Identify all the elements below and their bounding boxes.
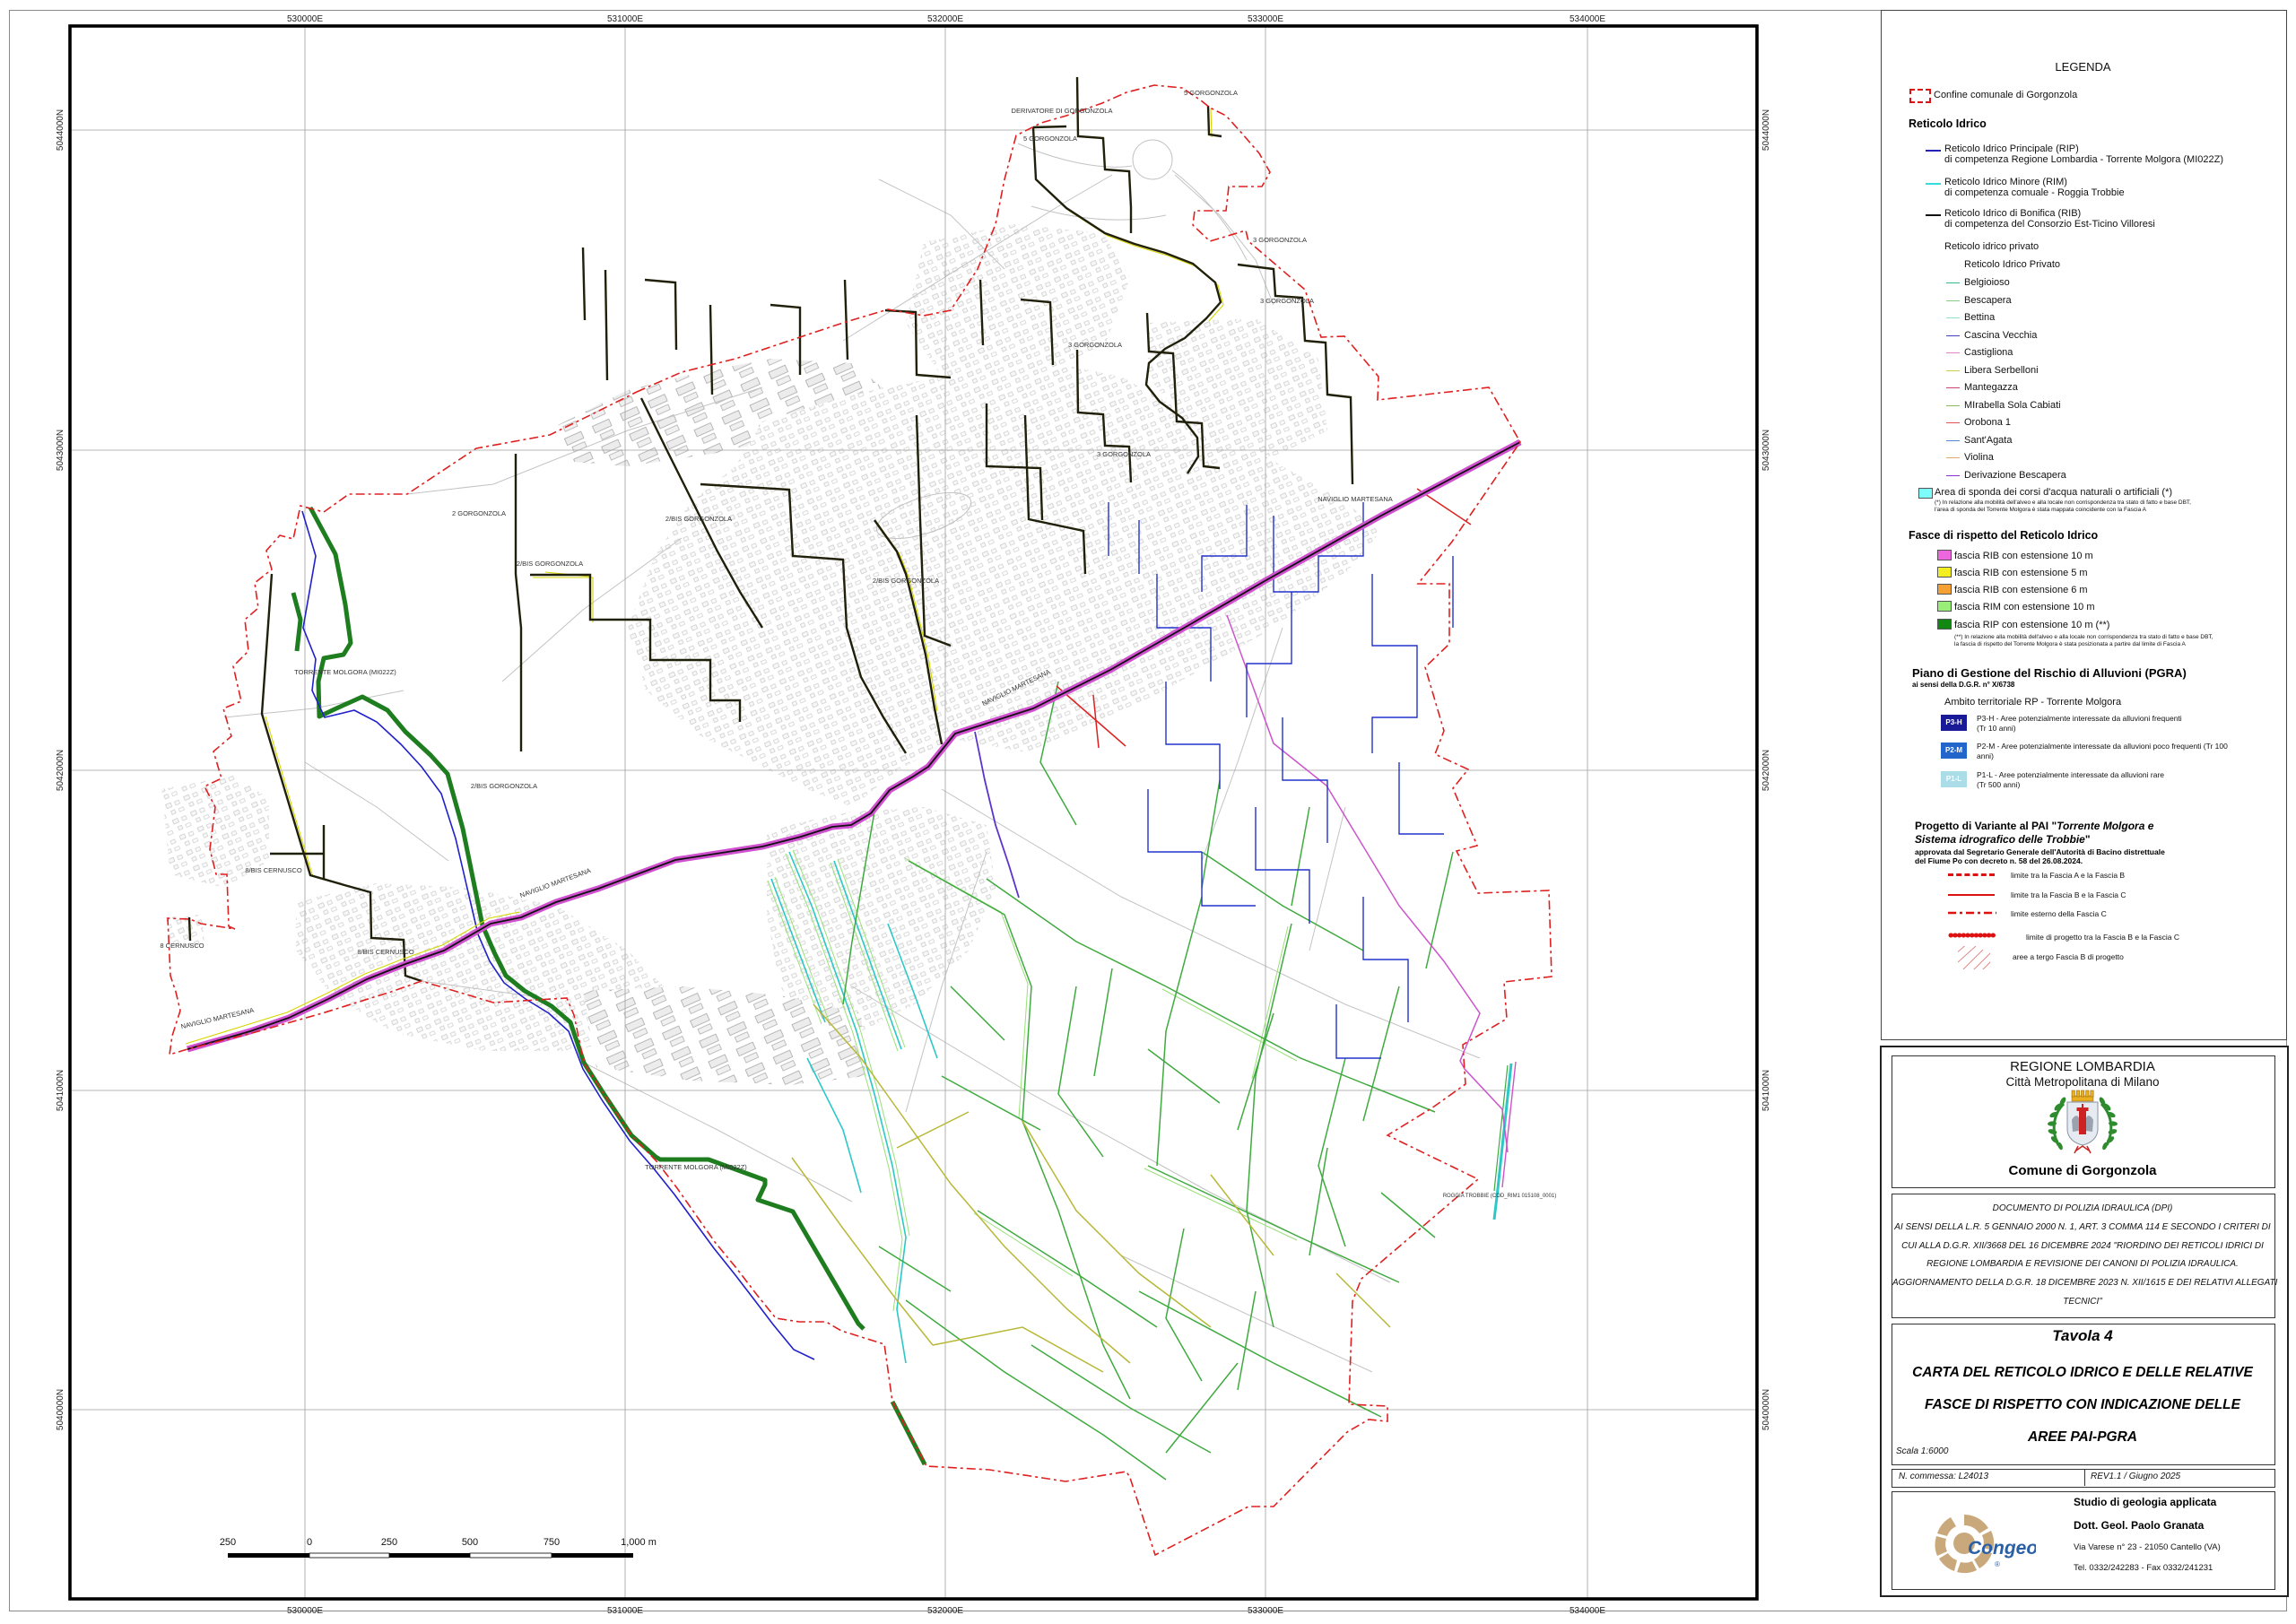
- svg-text:531000E: 531000E: [607, 14, 643, 24]
- svg-text:530000E: 530000E: [287, 14, 323, 24]
- svg-text:8/BIS CERNUSCO: 8/BIS CERNUSCO: [245, 866, 302, 874]
- svg-text:2/BIS GORGONZOLA: 2/BIS GORGONZOLA: [471, 782, 537, 790]
- svg-text:500: 500: [462, 1537, 478, 1548]
- svg-text:534000E: 534000E: [1570, 1606, 1605, 1616]
- svg-text:5 GORGONZOLA: 5 GORGONZOLA: [1023, 135, 1077, 143]
- svg-text:5 GORGONZOLA: 5 GORGONZOLA: [1184, 89, 1238, 97]
- svg-text:®: ®: [1995, 1560, 2000, 1568]
- svg-text:750: 750: [544, 1537, 560, 1548]
- svg-text:533000E: 533000E: [1248, 1606, 1283, 1616]
- svg-text:534000E: 534000E: [1570, 14, 1605, 24]
- svg-text:3 GORGONZOLA: 3 GORGONZOLA: [1260, 297, 1314, 305]
- svg-text:1,000 m: 1,000 m: [621, 1537, 657, 1548]
- svg-text:532000E: 532000E: [927, 1606, 963, 1616]
- svg-text:250: 250: [220, 1537, 236, 1548]
- svg-text:5042000N: 5042000N: [1761, 750, 1771, 791]
- svg-text:5040000N: 5040000N: [56, 1389, 65, 1430]
- svg-text:NAVIGLIO MARTESANA: NAVIGLIO MARTESANA: [180, 1006, 255, 1031]
- svg-text:0: 0: [307, 1537, 312, 1548]
- svg-text:5044000N: 5044000N: [56, 109, 65, 151]
- svg-text:530000E: 530000E: [287, 1606, 323, 1616]
- svg-text:2/BIS GORGONZOLA: 2/BIS GORGONZOLA: [665, 515, 732, 523]
- svg-text:NAVIGLIO MARTESANA: NAVIGLIO MARTESANA: [1318, 495, 1393, 503]
- svg-text:5044000N: 5044000N: [1761, 109, 1771, 151]
- svg-text:5041000N: 5041000N: [1761, 1070, 1771, 1111]
- svg-text:ROGGIA TROBBIE (COD_RIM1 01510: ROGGIA TROBBIE (COD_RIM1 015108_0001): [1443, 1194, 1557, 1199]
- svg-text:3 GORGONZOLA: 3 GORGONZOLA: [1097, 450, 1151, 458]
- svg-text:8/BIS CERNUSCO: 8/BIS CERNUSCO: [357, 948, 414, 956]
- svg-text:2/BIS GORGONZOLA: 2/BIS GORGONZOLA: [873, 577, 939, 585]
- svg-text:250: 250: [381, 1537, 397, 1548]
- svg-text:5043000N: 5043000N: [1761, 430, 1771, 471]
- svg-text:532000E: 532000E: [927, 14, 963, 24]
- svg-text:TORRENTE MOLGORA (MI022Z): TORRENTE MOLGORA (MI022Z): [294, 668, 396, 676]
- svg-text:5042000N: 5042000N: [56, 750, 65, 791]
- svg-text:5043000N: 5043000N: [56, 430, 65, 471]
- svg-text:3 GORGONZOLA: 3 GORGONZOLA: [1068, 341, 1122, 349]
- svg-text:TORRENTE MOLGORA (MI022Z): TORRENTE MOLGORA (MI022Z): [645, 1163, 747, 1171]
- svg-text:2 GORGONZOLA: 2 GORGONZOLA: [452, 509, 506, 517]
- svg-text:531000E: 531000E: [607, 1606, 643, 1616]
- svg-text:8 CERNUSCO: 8 CERNUSCO: [160, 942, 204, 950]
- svg-text:Congeo: Congeo: [1968, 1538, 2036, 1559]
- svg-text:3 GORGONZOLA: 3 GORGONZOLA: [1253, 236, 1307, 244]
- svg-text:2/BIS GORGONZOLA: 2/BIS GORGONZOLA: [517, 560, 583, 568]
- svg-text:533000E: 533000E: [1248, 14, 1283, 24]
- svg-text:5041000N: 5041000N: [56, 1070, 65, 1111]
- svg-text:5040000N: 5040000N: [1761, 1389, 1771, 1430]
- svg-text:DERIVATORE DI GORGONZOLA: DERIVATORE DI GORGONZOLA: [1012, 107, 1113, 115]
